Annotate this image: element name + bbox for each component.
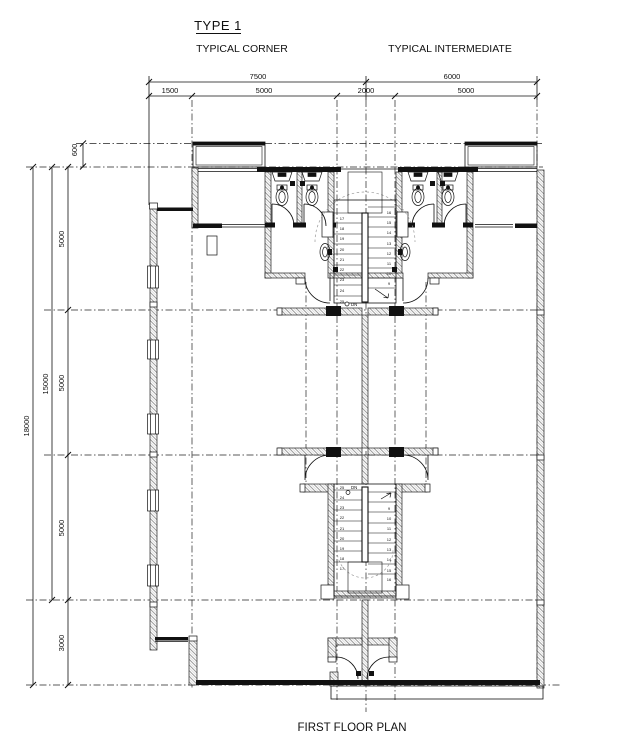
dim-3000: 3000	[57, 635, 66, 652]
window-icon	[148, 565, 159, 586]
stair-step-number: 13	[387, 547, 392, 552]
sink-icon	[302, 172, 322, 181]
stair-step-number: 20	[340, 536, 345, 541]
dim-6000: 6000	[444, 72, 461, 81]
planter-box-right	[465, 142, 537, 167]
stair-step-number: 21	[340, 526, 345, 531]
door-arc	[305, 278, 330, 303]
floor-plan-drawing: 7500 6000 1500 5000 2000 5000 18000 1500…	[0, 0, 629, 755]
stair-step-number: 24	[340, 288, 345, 293]
toilet-icon	[276, 185, 288, 206]
dim-18000: 18000	[22, 416, 31, 437]
dim-7500: 7500	[250, 72, 267, 81]
dim-15000: 15000	[41, 374, 50, 395]
stair-step-number: 17	[340, 216, 345, 221]
door-arc	[305, 455, 330, 480]
stair-step-number: 14	[387, 230, 392, 235]
toilet-icon	[306, 185, 318, 206]
stair-step-number: 18	[340, 226, 345, 231]
stair-step-number: 11	[387, 526, 392, 531]
direction-arrow-icon	[375, 289, 389, 298]
stair-step-number: 19	[340, 236, 345, 241]
wall-party-center	[362, 315, 368, 448]
lower-stair: 25 24 23 22 21 20 19 18 17 9 10 11 12 13…	[334, 484, 396, 596]
door-arc	[412, 204, 434, 226]
stair-step-number: 12	[387, 537, 392, 542]
bottom-apron	[331, 686, 543, 699]
stair-step-number: 10	[387, 516, 392, 521]
stair-handrail	[362, 487, 368, 562]
stair-step-number: 15	[387, 568, 392, 573]
stair-step-number: 22	[340, 515, 345, 520]
dim-1500: 1500	[162, 86, 179, 95]
window-icon	[148, 340, 159, 359]
stair-step-number: 11	[387, 261, 392, 266]
stair-step-number: 16	[387, 210, 392, 215]
window-icon	[148, 266, 159, 288]
dimension-labels: 7500 6000 1500 5000 2000 5000 18000 1500…	[22, 72, 474, 651]
stair-step-number: 12	[387, 251, 392, 256]
left-unit-label: TYPICAL CORNER	[196, 43, 288, 55]
stair-step-number: 21	[340, 257, 345, 262]
stair-step-number: 24	[340, 495, 345, 500]
sink-icon	[408, 172, 428, 181]
down-label: DN	[351, 485, 357, 490]
toilet-icon	[412, 185, 424, 206]
stair-step-number: 17	[340, 566, 345, 571]
stair-step-number: 15	[387, 220, 392, 225]
stair-step-number: 14	[387, 557, 392, 562]
dim-5000-left-2: 5000	[57, 375, 66, 392]
stair-step-number: 20	[340, 247, 345, 252]
stair-start-marker	[345, 302, 349, 306]
wall-bands	[155, 142, 540, 685]
floor-plan-sheet: 7500 6000 1500 5000 2000 5000 18000 1500…	[0, 0, 629, 755]
stair-step-number: 23	[340, 277, 345, 282]
dim-5000-top-right: 5000	[458, 86, 475, 95]
titles: TYPE 1 TYPICAL CORNER TYPICAL INTERMEDIA…	[194, 18, 512, 734]
stair-step-number: 25	[340, 299, 345, 304]
stair-step-number: 10	[387, 271, 392, 276]
stair-step-number: 9	[388, 281, 391, 286]
window-icon	[148, 490, 159, 511]
toilet-icon	[442, 185, 454, 206]
direction-arrow-icon	[381, 493, 391, 499]
dim-600: 600	[70, 144, 79, 157]
dim-5000-left-3: 5000	[57, 520, 66, 537]
door-arc	[403, 455, 428, 480]
page-title: TYPE 1	[194, 18, 242, 33]
door-arc	[403, 278, 428, 303]
down-label: DN	[351, 302, 357, 307]
stair-step-number: 13	[387, 241, 392, 246]
grid-lines	[26, 100, 560, 712]
wall-lines	[155, 142, 537, 642]
stair-step-number: 9	[388, 506, 391, 511]
dim-5000-left-1: 5000	[57, 231, 66, 248]
door-arc	[336, 657, 358, 679]
dim-5000-top-left: 5000	[256, 86, 273, 95]
planter-box-left	[193, 142, 265, 167]
stair-start-marker	[346, 491, 350, 495]
stair-handrail	[362, 213, 368, 302]
stair-step-number: 16	[387, 577, 392, 582]
stair-step-number: 19	[340, 546, 345, 551]
stair-step-number: 25	[340, 485, 345, 490]
right-unit-label: TYPICAL INTERMEDIATE	[388, 43, 512, 55]
door-arc	[272, 204, 294, 226]
door-arc	[444, 204, 466, 226]
wall-exterior-right	[537, 170, 544, 688]
dim-2000: 2000	[358, 86, 375, 95]
stair-step-number: 18	[340, 556, 345, 561]
stair-step-number: 22	[340, 267, 345, 272]
plan-caption: FIRST FLOOR PLAN	[297, 722, 406, 734]
stair-step-number: 23	[340, 505, 345, 510]
window-icon	[148, 414, 159, 434]
sink-icon	[272, 172, 292, 181]
